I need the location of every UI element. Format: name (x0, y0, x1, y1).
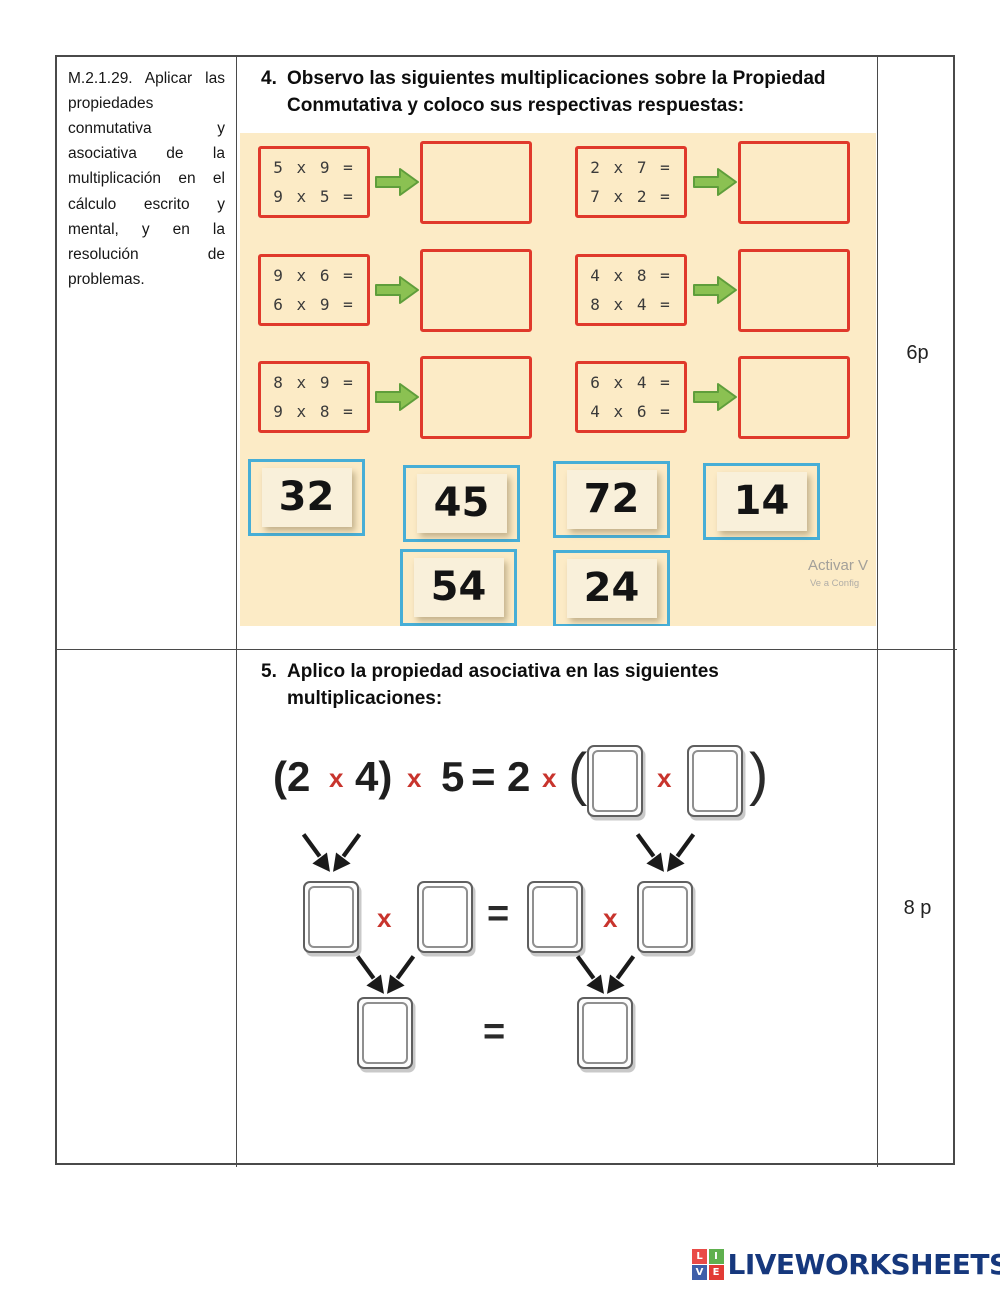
arrow-right-icon (692, 167, 738, 197)
multiplication-pair-box: 8 x 9 = 9 x 8 = (258, 361, 370, 433)
answer-input-inner (422, 886, 468, 948)
windows-activation-watermark: Activar V (808, 557, 868, 574)
answer-tile[interactable]: 45 (403, 465, 520, 542)
answer-input-inner (592, 750, 638, 812)
answer-input-inner (308, 886, 354, 948)
tile-value: 45 (417, 474, 507, 533)
equation-token: (2 (273, 753, 310, 801)
answer-input-inner (532, 886, 578, 948)
red-times-sign: x (603, 903, 617, 934)
answer-drop-box[interactable] (420, 249, 532, 332)
close-paren: ) (749, 741, 768, 808)
red-times-sign: x (329, 763, 343, 794)
logo-square: V (692, 1265, 707, 1280)
multiplication-line: 9 x 6 = (273, 266, 354, 285)
equation-token: 2 (507, 753, 530, 801)
tile-value: 24 (567, 559, 657, 618)
multiplication-pair-box: 9 x 6 = 6 x 9 = (258, 254, 370, 326)
answer-input-box[interactable] (357, 997, 413, 1069)
multiplication-line: 6 x 4 = (590, 373, 671, 392)
answer-drop-box[interactable] (738, 141, 850, 224)
multiplication-line: 8 x 4 = (590, 295, 671, 314)
arrow-right-icon (692, 275, 738, 305)
answer-tile[interactable]: 32 (248, 459, 365, 536)
red-times-sign: x (542, 763, 556, 794)
answer-input-inner (642, 886, 688, 948)
exercise4-heading: 4. Observo las siguientes multiplicacion… (237, 57, 877, 120)
logo-grid-icon: L I V E (692, 1249, 724, 1281)
exercise5-title: Aplico la propiedad asociativa en las si… (287, 659, 827, 713)
multiplication-line: 9 x 8 = (273, 402, 354, 421)
points-value: 6p (906, 342, 928, 365)
logo-wordmark: LIVEWORKSHEETS (728, 1248, 1000, 1281)
logo-square: I (709, 1249, 724, 1264)
answer-tile[interactable]: 72 (553, 461, 670, 538)
arrow-right-icon (374, 167, 420, 197)
multiplication-line: 5 x 9 = (273, 158, 354, 177)
answer-input-box[interactable] (577, 997, 633, 1069)
answer-input-inner (362, 1002, 408, 1064)
answer-input-box[interactable] (417, 881, 473, 953)
answer-input-box[interactable] (637, 881, 693, 953)
answer-input-box[interactable] (303, 881, 359, 953)
answer-input-inner (582, 1002, 628, 1064)
multiplication-pair-box: 6 x 4 = 4 x 6 = (575, 361, 687, 433)
points-value: 8 p (904, 897, 932, 920)
converging-arrows-icon (289, 831, 374, 875)
multiplication-line: 4 x 6 = (590, 402, 671, 421)
multiplication-pair-box: 4 x 8 = 8 x 4 = (575, 254, 687, 326)
multiplication-line: 8 x 9 = (273, 373, 354, 392)
answer-input-box[interactable] (587, 745, 643, 817)
equation-token: 4) (355, 753, 392, 801)
multiplication-line: 4 x 8 = (590, 266, 671, 285)
objective-text: M.2.1.29. Aplicar las propiedades conmut… (57, 57, 236, 301)
arrow-right-icon (692, 382, 738, 412)
equals-sign: = (487, 893, 509, 936)
converging-arrows-icon (343, 953, 428, 997)
arrow-right-icon (374, 275, 420, 305)
points-cell-exercise5: 8 p (878, 650, 957, 1167)
converging-arrows-icon (623, 831, 708, 875)
arrow-right-icon (374, 382, 420, 412)
commutative-activity-panel: 5 x 9 = 9 x 5 = 2 x 7 = 7 x 2 = (240, 133, 876, 626)
multiplication-line: 9 x 5 = (273, 187, 354, 206)
exercise4-number: 4. (261, 66, 287, 120)
answer-drop-box[interactable] (738, 249, 850, 332)
multiplication-line: 6 x 9 = (273, 295, 354, 314)
empty-cell (57, 650, 237, 1167)
multiplication-line: 2 x 7 = (590, 158, 671, 177)
answer-input-box[interactable] (687, 745, 743, 817)
answer-input-inner (692, 750, 738, 812)
answer-input-box[interactable] (527, 881, 583, 953)
windows-activation-watermark-sub: Ve a Config (810, 578, 859, 589)
equation-token: 5 (441, 753, 464, 801)
liveworksheets-logo[interactable]: L I V E LIVEWORKSHEETS (692, 1248, 1000, 1281)
tile-value: 32 (262, 468, 352, 527)
multiplication-pair-box: 5 x 9 = 9 x 5 = (258, 146, 370, 218)
worksheet-page: M.2.1.29. Aplicar las propiedades conmut… (0, 0, 1000, 1291)
exercise5-heading: 5. Aplico la propiedad asociativa en las… (237, 650, 877, 713)
exercise4-cell: 4. Observo las siguientes multiplicacion… (237, 57, 878, 650)
converging-arrows-icon (563, 953, 648, 997)
objective-cell: M.2.1.29. Aplicar las propiedades conmut… (57, 57, 237, 650)
exercise5-cell: 5. Aplico la propiedad asociativa en las… (237, 650, 878, 1167)
open-paren: ( (568, 741, 587, 808)
exercise5-number: 5. (261, 659, 287, 713)
exercise4-title: Observo las siguientes multiplicaciones … (287, 66, 853, 120)
tile-value: 72 (567, 470, 657, 529)
multiplication-pair-box: 2 x 7 = 7 x 2 = (575, 146, 687, 218)
equals-sign: = (483, 1011, 505, 1054)
tile-value: 54 (414, 558, 504, 617)
associative-property-figure: (2 x 4) x 5 = 2 x ( x ) (265, 739, 845, 1084)
worksheet-table: M.2.1.29. Aplicar las propiedades conmut… (55, 55, 955, 1165)
equals-sign: = (471, 753, 496, 801)
answer-tile[interactable]: 24 (553, 550, 670, 626)
red-times-sign: x (377, 903, 391, 934)
answer-drop-box[interactable] (420, 141, 532, 224)
answer-drop-box[interactable] (738, 356, 850, 439)
answer-tile[interactable]: 14 (703, 463, 820, 540)
red-times-sign: x (407, 763, 421, 794)
logo-square: L (692, 1249, 707, 1264)
multiplication-line: 7 x 2 = (590, 187, 671, 206)
red-times-sign: x (657, 763, 671, 794)
tile-value: 14 (717, 472, 807, 531)
answer-drop-box[interactable] (420, 356, 532, 439)
points-cell-exercise4: 6p (878, 57, 957, 650)
answer-tile[interactable]: 54 (400, 549, 517, 626)
logo-square: E (709, 1265, 724, 1280)
